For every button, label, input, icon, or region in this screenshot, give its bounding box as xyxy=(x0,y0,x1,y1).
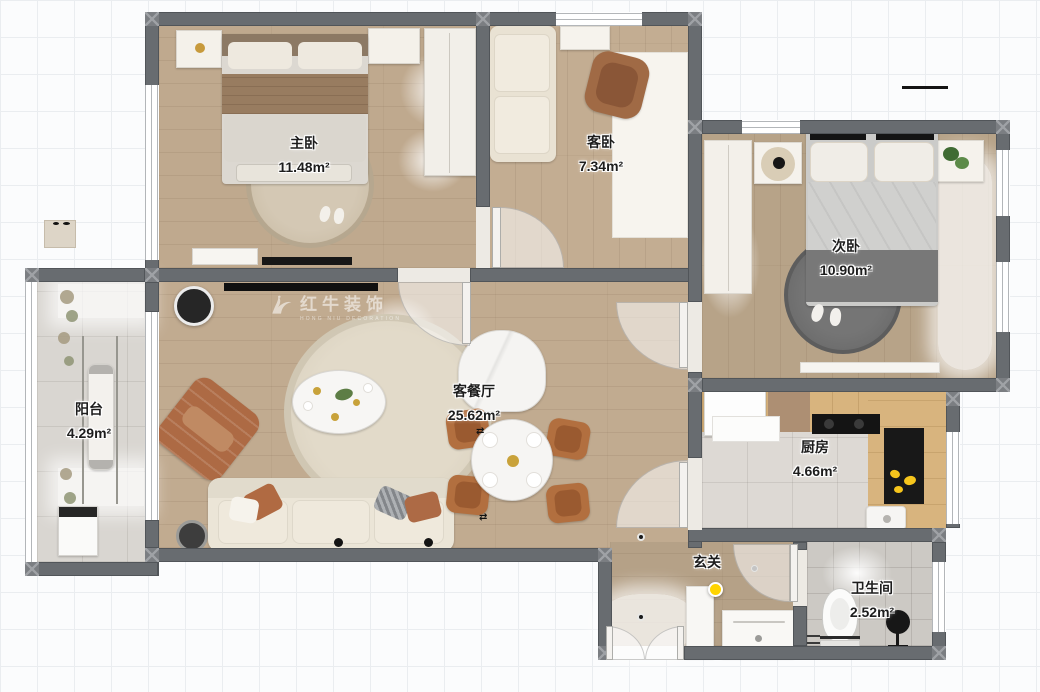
dining-chair[interactable] xyxy=(545,482,591,524)
second-door-threshold xyxy=(688,302,702,372)
table-plate xyxy=(526,472,542,488)
room-area: 2.52m² xyxy=(850,601,894,625)
swatch-mark xyxy=(63,222,70,225)
master-nightstand-right[interactable] xyxy=(368,28,420,64)
armchair-throw xyxy=(179,403,237,455)
kitchen-cabinet-front[interactable] xyxy=(712,416,780,442)
guest-door-leaf[interactable] xyxy=(492,207,501,268)
room-name: 次卧 xyxy=(820,235,872,259)
wall-guest-bottom xyxy=(470,268,702,282)
room-label-balcony[interactable]: 阳台 4.29m² xyxy=(67,398,111,446)
bed-pillow xyxy=(874,142,934,182)
room-name: 客卧 xyxy=(579,131,623,155)
table-plate xyxy=(482,432,498,448)
wall-joint xyxy=(145,268,159,282)
sofa-pillow-white xyxy=(228,496,260,524)
table-dish xyxy=(303,401,313,411)
chandelier-decor xyxy=(313,387,321,395)
wall-joint xyxy=(688,12,702,26)
wall-joint xyxy=(145,12,159,26)
rack-cap xyxy=(89,460,113,469)
chair-seat xyxy=(554,489,583,518)
move-arrows-icon: ⇄ xyxy=(479,512,487,523)
wall-balcony-top xyxy=(25,268,145,282)
downlight-marker xyxy=(637,613,645,621)
room-area: 25.62m² xyxy=(448,404,500,428)
room-name: 客餐厅 xyxy=(448,380,500,404)
balcony-left-window xyxy=(25,282,37,562)
window-light-wash xyxy=(938,156,992,370)
room-label-master-bedroom[interactable]: 主卧 11.48m² xyxy=(278,132,329,180)
flame-icon xyxy=(889,469,901,480)
chair-seat xyxy=(454,481,483,510)
wall-bottom-right xyxy=(684,646,946,660)
balcony-plant xyxy=(60,468,72,480)
second-door-leaf[interactable] xyxy=(679,302,688,368)
master-dresser[interactable] xyxy=(192,248,258,265)
vanity-edge xyxy=(733,621,785,623)
wall-second-bottom xyxy=(702,378,1010,392)
wall-joint xyxy=(996,120,1010,134)
table-centerpiece xyxy=(507,455,519,467)
balcony-plant xyxy=(66,310,78,322)
plant-decor xyxy=(955,157,969,169)
guest-door-threshold xyxy=(476,207,490,268)
master-left-window xyxy=(145,85,159,260)
room-name: 玄关 xyxy=(693,551,721,575)
table-dish xyxy=(363,383,373,393)
balcony-plant xyxy=(64,356,74,366)
scale-line xyxy=(902,86,948,89)
downlight-marker xyxy=(637,533,645,541)
appliance-dial xyxy=(883,515,891,523)
room-area: 4.29m² xyxy=(67,422,111,446)
bed-pillow xyxy=(298,42,362,69)
second-nightstand-right[interactable] xyxy=(934,140,984,182)
living-sofa[interactable] xyxy=(208,478,454,552)
yellow-selection-marker[interactable] xyxy=(708,582,723,597)
guest-top-window xyxy=(556,12,642,26)
wall-joint xyxy=(25,268,39,282)
bathroom-right-window xyxy=(932,562,946,632)
wall-balcony-living-lower xyxy=(145,520,159,548)
sofa-foot xyxy=(424,538,433,547)
kitchen-cooktop[interactable] xyxy=(812,414,880,434)
nightstand-decor xyxy=(195,43,205,53)
balcony-plant xyxy=(58,332,70,344)
master-nightstand-left[interactable] xyxy=(176,30,222,68)
plant-sprig-decor xyxy=(334,387,354,402)
kitchen-door-leaf[interactable] xyxy=(679,462,688,528)
entry-door-leaf-left[interactable] xyxy=(606,626,613,660)
wall-joint xyxy=(145,548,159,562)
wall-joint xyxy=(688,378,702,392)
balcony-plant xyxy=(64,492,76,504)
bed-pillow xyxy=(228,42,292,69)
second-top-window xyxy=(742,120,800,134)
burner xyxy=(824,419,834,429)
stray-material-swatch[interactable] xyxy=(44,220,76,248)
second-low-shelf[interactable] xyxy=(800,362,940,373)
kitchen-oven[interactable] xyxy=(884,428,924,504)
kitchen-right-window xyxy=(946,432,960,524)
table-plate xyxy=(526,432,542,448)
master-tv[interactable] xyxy=(262,257,352,265)
washing-machine[interactable] xyxy=(58,506,98,556)
kitchen-door-threshold xyxy=(688,458,702,530)
toilet-seat xyxy=(830,598,850,630)
daybed-cushion xyxy=(494,34,550,92)
room-label-guest-bedroom[interactable]: 客卧 7.34m² xyxy=(579,131,623,179)
kitchen-appliance[interactable] xyxy=(866,506,906,530)
wall-joint xyxy=(946,392,960,406)
daybed-cushion xyxy=(494,96,550,154)
brand-watermark: 红牛装饰 HONG NIU DECORATION xyxy=(268,290,401,322)
burner xyxy=(854,419,864,429)
chair-seat xyxy=(553,424,583,454)
wall-living-bottom xyxy=(145,548,610,562)
chair-seat xyxy=(593,60,640,110)
wall-joint xyxy=(476,12,490,26)
chandelier-decor xyxy=(353,399,360,406)
room-label-second-bedroom[interactable]: 次卧 10.90m² xyxy=(820,235,872,283)
balcony-plant xyxy=(60,290,74,304)
bed-blanket xyxy=(222,74,368,114)
washer-panel xyxy=(59,507,97,517)
second-right-window-2 xyxy=(996,262,1010,332)
room-area: 11.48m² xyxy=(278,156,329,180)
wall-joint xyxy=(598,548,612,562)
rack-cap xyxy=(89,365,113,374)
room-label-bathroom[interactable]: 卫生间 2.52m² xyxy=(850,577,894,625)
room-label-kitchen[interactable]: 厨房 4.66m² xyxy=(793,436,837,484)
second-wardrobe[interactable] xyxy=(704,140,752,294)
entry-door-leaf-right[interactable] xyxy=(677,626,684,660)
room-name: 主卧 xyxy=(278,132,329,156)
room-label-hallway[interactable]: 玄关 xyxy=(693,551,721,575)
room-area: 4.66m² xyxy=(793,460,837,484)
wall-joint xyxy=(25,562,39,576)
guest-daybed[interactable] xyxy=(490,26,556,162)
wall-bath-left xyxy=(793,606,807,646)
wall-master-guest-divider xyxy=(476,12,490,207)
flame-icon xyxy=(903,475,917,486)
wall-joint xyxy=(996,378,1010,392)
candle-decor xyxy=(773,157,785,169)
room-name: 卫生间 xyxy=(850,577,894,601)
plant-stem xyxy=(896,632,899,646)
flame-icon xyxy=(894,486,903,493)
wall-master-bottom xyxy=(145,268,398,282)
wall-right-upper xyxy=(688,12,702,302)
master-wardrobe[interactable] xyxy=(424,28,476,176)
wardrobe-divider xyxy=(728,145,729,291)
watermark-sub-text: HONG NIU DECORATION xyxy=(300,316,401,322)
wall-kitchen-bottom xyxy=(688,528,946,542)
room-area: 10.90m² xyxy=(820,259,872,283)
chandelier-decor xyxy=(331,413,339,421)
master-door-leaf[interactable] xyxy=(462,282,471,344)
wall-balcony-bottom xyxy=(25,562,158,576)
wardrobe-divider xyxy=(449,33,450,173)
swatch-mark xyxy=(53,222,59,225)
drying-rack-rail xyxy=(116,336,118,504)
second-nightstand-left[interactable] xyxy=(754,142,802,184)
bull-logo-icon xyxy=(268,293,294,319)
coffee-table[interactable] xyxy=(292,370,386,434)
room-label-living-dining[interactable]: 客餐厅 25.62m² xyxy=(448,380,500,428)
bathroom-door-leaf[interactable] xyxy=(790,544,798,602)
second-right-window-1 xyxy=(996,150,1010,216)
vanity-drain xyxy=(755,635,762,642)
guest-shelf[interactable] xyxy=(560,26,610,50)
wall-joint xyxy=(688,120,702,134)
wall-balcony-living-upper xyxy=(145,282,159,312)
living-plant-pot[interactable] xyxy=(174,286,214,326)
floor-plan-canvas: ⇄ ⇄ xyxy=(0,0,1040,692)
sofa-seat-cushion xyxy=(292,500,370,544)
wall-joint xyxy=(932,646,946,660)
room-area: 7.34m² xyxy=(579,155,623,179)
wall-joint xyxy=(932,528,946,542)
toilet-hinge xyxy=(820,636,860,639)
room-name: 阳台 xyxy=(67,398,111,422)
balcony-sliding-door[interactable] xyxy=(145,312,159,520)
master-door-threshold xyxy=(398,268,470,282)
bed-pillow xyxy=(810,142,868,182)
sofa-foot xyxy=(334,538,343,547)
room-name: 厨房 xyxy=(793,436,837,460)
watermark-brand-text: 红牛装饰 xyxy=(300,290,401,315)
table-plate xyxy=(482,472,498,488)
